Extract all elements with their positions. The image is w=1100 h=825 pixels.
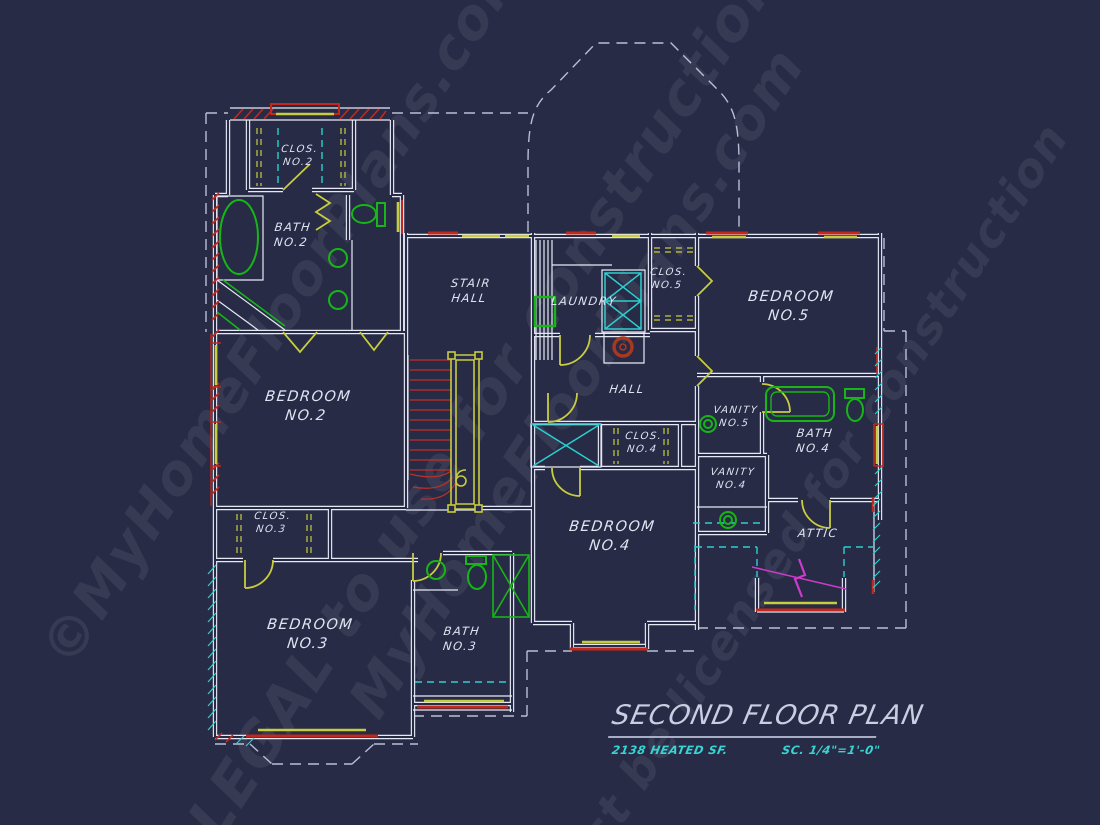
tub-platform (217, 196, 263, 280)
toilet-icon (352, 205, 376, 223)
dormer-window-frame (271, 104, 339, 114)
attic-kneewall (695, 545, 874, 610)
sink-icon (700, 416, 716, 432)
interior-linework (217, 108, 874, 710)
toilet-icon (847, 399, 863, 421)
stair-winders (410, 471, 456, 499)
walls (215, 120, 880, 737)
title-block: SECOND FLOOR PLAN 2138 HEATED SF. SC. 1/… (612, 700, 880, 757)
floor-plan-drawing (0, 0, 1100, 825)
stair-volute (456, 476, 466, 486)
floor-plan-page: ©MyHomeFloorPlans.com MyHomeFloorPlans.c… (0, 0, 1100, 825)
stair-wall (406, 355, 478, 510)
laundry-cabinet (605, 273, 641, 329)
sink-icon (329, 249, 347, 267)
accordion-door (316, 194, 330, 230)
sink-icon (720, 512, 736, 528)
roofline-dashed (206, 43, 906, 764)
shower-glass (217, 280, 285, 330)
turret-roof-outline (528, 43, 739, 232)
stairs (410, 352, 482, 512)
closet-rods-cyan (278, 128, 874, 682)
heated-sf-value: 2138 HEATED SF. (611, 743, 729, 757)
stair-railing (451, 355, 479, 509)
siding-hatching (208, 347, 882, 746)
dryer-vent-icon (614, 338, 632, 356)
bay-window-roof (215, 744, 418, 764)
closet-shelves (237, 128, 693, 553)
toilet-icon (468, 565, 486, 589)
stair-treads (410, 360, 451, 470)
sink-icon (329, 291, 347, 309)
attic-electrical-mark (752, 559, 846, 597)
tub-icon (220, 200, 258, 274)
scale-value: SC. 1/4"=1'-0" (781, 743, 882, 757)
plan-title: SECOND FLOOR PLAN (608, 700, 884, 738)
bolt-icon (795, 559, 805, 597)
linen-cabinet (531, 424, 601, 466)
